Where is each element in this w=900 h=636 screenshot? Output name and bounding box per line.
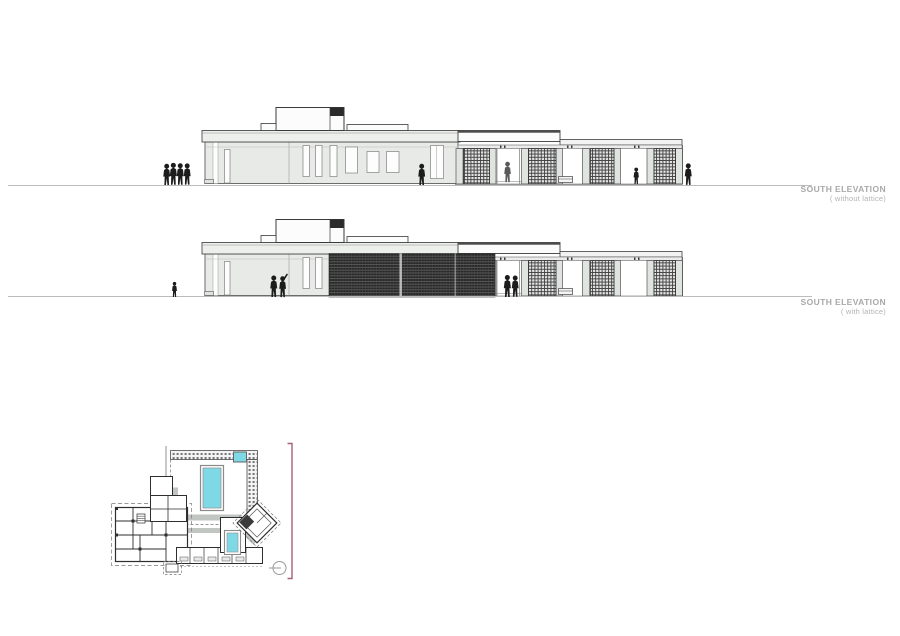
mid-rooms: [151, 477, 187, 522]
floor-plan: [112, 444, 293, 579]
person-figure: [504, 162, 511, 182]
person-figure: [177, 163, 184, 185]
person-figure: [685, 163, 692, 185]
person-figure: [170, 163, 177, 185]
person-figure: [172, 282, 177, 297]
elevation-label-1: SOUTH ELEVATION ( without lattice): [726, 184, 886, 204]
elevation-label-2: SOUTH ELEVATION ( with lattice): [726, 297, 886, 317]
lattice-joint: [400, 254, 402, 298]
datum-marker: [269, 562, 286, 575]
drawing-sheet: SOUTH ELEVATION ( without lattice) SOUTH…: [0, 0, 900, 636]
pavilion-wing: [455, 131, 683, 185]
swimming-pool: [203, 468, 221, 508]
bottom-rooms: [164, 548, 265, 575]
elevation-subtitle: ( with lattice): [726, 307, 886, 317]
elevation-subtitle: ( without lattice): [726, 194, 886, 204]
lattice-screen: [329, 254, 495, 298]
elevation-title: SOUTH ELEVATION: [726, 184, 886, 194]
person-figure: [634, 168, 639, 184]
spa-pool: [234, 452, 247, 462]
architectural-drawing: [0, 0, 900, 636]
elevation-south-with-lattice: [8, 220, 812, 298]
section-bracket: [288, 444, 293, 579]
swimming-pool: [227, 533, 238, 552]
elevation-title: SOUTH ELEVATION: [726, 297, 886, 307]
person-figure: [184, 163, 191, 184]
lattice-joint: [455, 254, 457, 298]
elevation-south-without-lattice: [8, 108, 812, 186]
person-figure: [163, 164, 170, 185]
